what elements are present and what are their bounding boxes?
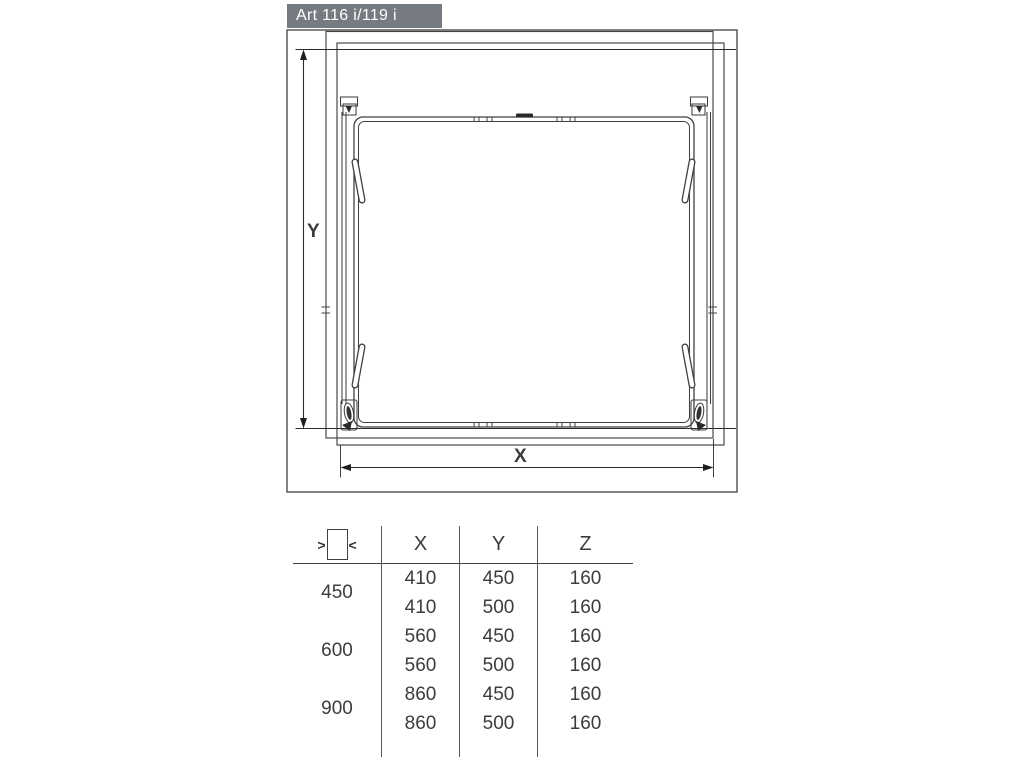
x-arrow-right [703, 464, 714, 471]
x-dimension-label: X [514, 446, 527, 467]
pullout-frame [354, 114, 694, 428]
corner-brackets [341, 97, 708, 431]
bracket-top-left [341, 97, 358, 115]
table-cell: 500 [460, 593, 538, 622]
table-cell: 860 [382, 680, 460, 709]
diagonal-braces [355, 162, 692, 385]
arrow-right-icon: > [317, 538, 325, 552]
header-width-symbol: > < [293, 526, 382, 564]
cabinet-inner-rect-a [326, 32, 713, 439]
column-header-y: Y [460, 526, 538, 564]
group-label-900: 900 [293, 680, 382, 738]
table-cell: 560 [382, 651, 460, 680]
table-rule-extension [538, 738, 633, 757]
y-dimension-label: Y [307, 221, 320, 242]
bracket-top-right [691, 97, 708, 115]
table-cell: 500 [460, 709, 538, 738]
table-cell: 410 [382, 564, 460, 593]
y-arrow-down [300, 418, 307, 429]
y-arrow-up [300, 50, 307, 61]
table-cell: 860 [382, 709, 460, 738]
table-cell: 500 [460, 651, 538, 680]
column-header-x: X [382, 526, 460, 564]
frame-joint-ticks [474, 118, 575, 428]
cabinet-inner-rect-b [337, 43, 724, 445]
group-label-600: 600 [293, 622, 382, 680]
table-cell: 160 [538, 593, 633, 622]
table-cell: 450 [460, 564, 538, 593]
table-cell: 160 [538, 709, 633, 738]
dimension-table: > < X Y Z 450 410 450 160 410 500 160 60… [293, 526, 633, 757]
runner-rails [342, 112, 711, 404]
wall-tick-marks [322, 307, 718, 313]
table-rule-extension [460, 738, 538, 757]
article-title: Art 116 i/119 i [296, 7, 397, 24]
table-cell: 450 [460, 622, 538, 651]
catalog-page: Y X Art 116 i/119 i > < X Y Z 450 410 45… [0, 0, 1024, 768]
x-arrow-left [341, 464, 352, 471]
table-cell: 450 [460, 680, 538, 709]
article-title-box: Art 116 i/119 i [287, 4, 442, 28]
technical-drawing: Y X [0, 0, 1024, 520]
table-rule-extension [382, 738, 460, 757]
table-cell: 160 [538, 651, 633, 680]
column-header-z: Z [538, 526, 633, 564]
table-cell: 410 [382, 593, 460, 622]
dimension-y: Y [296, 50, 737, 429]
table-cell: 160 [538, 680, 633, 709]
frame-inner-profile [359, 122, 690, 423]
group-label-450: 450 [293, 564, 382, 622]
frame-latch-mark [516, 114, 533, 118]
table-rule-extension [293, 738, 382, 757]
table-cell: 160 [538, 622, 633, 651]
cabinet-width-symbol [327, 529, 348, 560]
table-cell: 560 [382, 622, 460, 651]
table-cell: 160 [538, 564, 633, 593]
arrow-left-icon: < [349, 538, 357, 552]
frame-outer-profile [354, 117, 694, 427]
